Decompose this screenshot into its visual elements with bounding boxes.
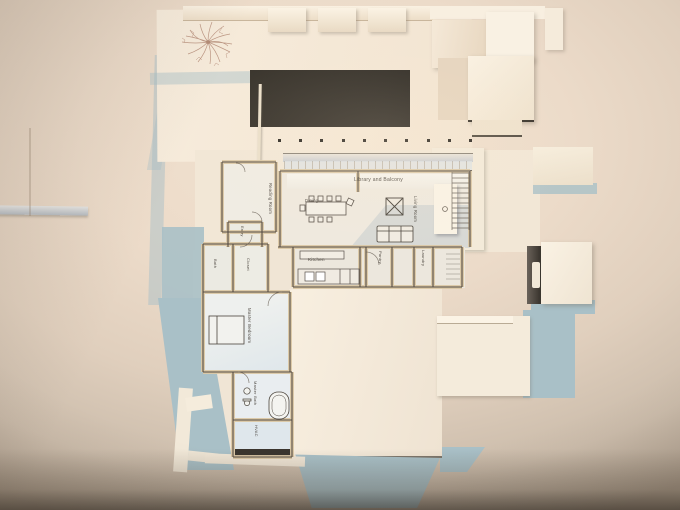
room-label-pantry: Pantry — [378, 251, 382, 264]
room-label-entry: Entry — [240, 226, 244, 237]
room-label-library: Library and Balcony — [287, 178, 470, 183]
toilet-sink-icons — [243, 388, 251, 406]
room-label-hvac: HVAC — [254, 425, 258, 437]
room-label-closet: Closet — [246, 258, 250, 271]
floorplan-linework — [0, 0, 680, 510]
room-label-master-bath: Master Bath — [253, 381, 257, 405]
sofa-icon — [377, 226, 413, 242]
room-label-dining: Dining — [305, 199, 318, 203]
kitchen-counter-icon — [298, 251, 359, 284]
room-label-reading-room: Reading Room — [268, 183, 272, 214]
room-label-bath: Bath — [213, 259, 217, 268]
room-label-living-room: Living Room — [413, 196, 417, 222]
bathtub-icon — [269, 392, 289, 419]
stair-hatch — [446, 172, 469, 279]
bed-icon — [209, 316, 244, 344]
room-label-master-bedroom: Master Bedroom — [247, 308, 251, 343]
room-label-kitchen: Kitchen — [308, 258, 325, 263]
skylight-x-box-icon — [386, 198, 403, 215]
room-label-laundry: Laundry — [421, 250, 425, 266]
tree-sketch — [160, 8, 260, 83]
architectural-model-photo: Library and Balcony Dining Living Room R… — [0, 0, 680, 510]
fireplace-circle — [443, 207, 448, 212]
